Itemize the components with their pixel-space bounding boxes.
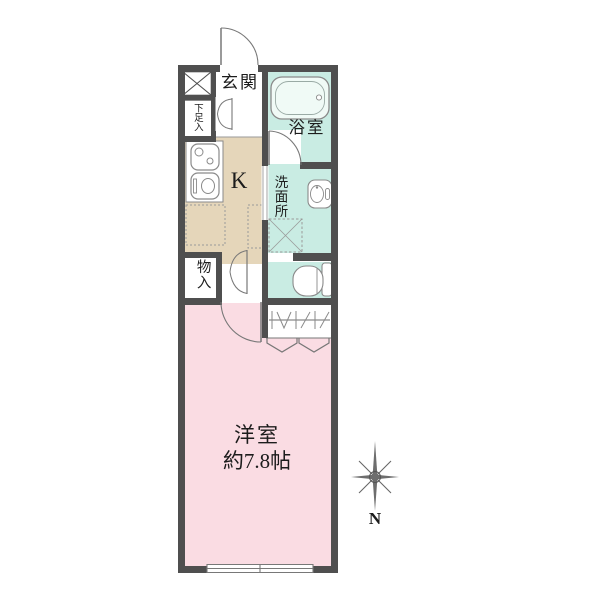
closet-floor [266, 305, 331, 338]
bathtub-icon [271, 77, 329, 119]
shoe-cabinet-icon [182, 71, 212, 96]
sink-icon [191, 173, 219, 199]
entrance-label: 玄関 [217, 73, 263, 93]
kitchen-counter [186, 141, 223, 202]
compass-rose-icon [351, 441, 399, 511]
stove-icon [191, 144, 219, 170]
entrance-door-swing [221, 28, 258, 65]
washroom-label: 洗面所 [272, 175, 288, 223]
window [207, 564, 313, 573]
bathroom-label: 浴室 [284, 119, 330, 138]
western-room-size: 約7.8帖 [207, 449, 307, 473]
toilet-icon [293, 263, 332, 296]
floorplan-drawing [0, 0, 600, 600]
storage-label: 物入 [194, 259, 211, 299]
washbasin-icon [308, 180, 332, 208]
kitchen-floor-tongue [222, 252, 263, 264]
western-room-label: 洋室 [207, 423, 307, 447]
shoe-storage-label: 下足入 [191, 103, 202, 137]
washroom-doorway [262, 166, 269, 220]
kitchen-label: K [227, 168, 251, 194]
compass-north-label: N [363, 509, 387, 529]
floorplan-canvas: 玄関 下足入 浴室 K 洗面所 物入 洋室 約7.8帖 N [0, 0, 600, 600]
